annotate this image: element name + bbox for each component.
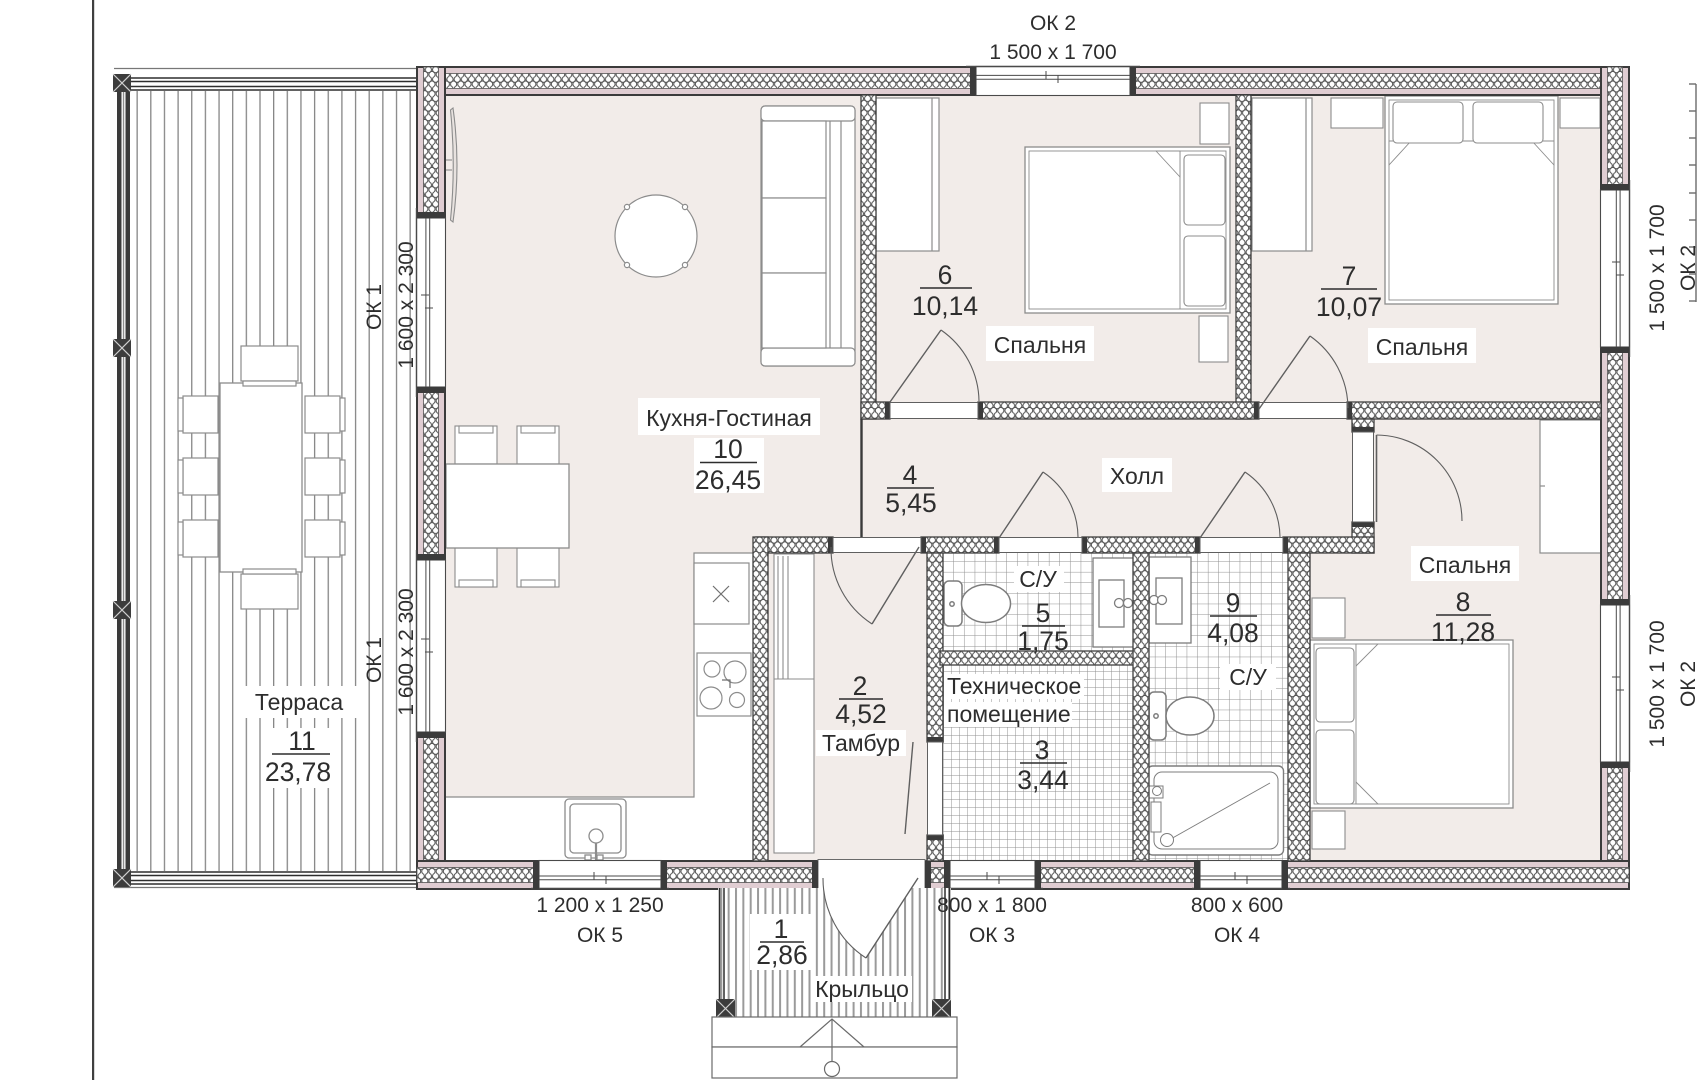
svg-text:ОК 4: ОК 4	[1214, 924, 1260, 947]
svg-text:10,14: 10,14	[912, 291, 978, 321]
svg-text:ОК 5: ОК 5	[577, 924, 623, 947]
svg-text:4,08: 4,08	[1207, 618, 1259, 648]
svg-text:8: 8	[1456, 587, 1471, 617]
svg-text:Спальня: Спальня	[1376, 334, 1468, 360]
svg-text:10,07: 10,07	[1316, 292, 1382, 322]
svg-text:ОК 2: ОК 2	[1677, 661, 1700, 707]
svg-text:11: 11	[288, 726, 316, 756]
svg-text:1,75: 1,75	[1017, 626, 1069, 656]
svg-text:11,28: 11,28	[1431, 617, 1495, 647]
svg-text:Холл: Холл	[1110, 463, 1164, 489]
svg-text:10: 10	[713, 434, 742, 464]
svg-text:Спальня: Спальня	[1419, 552, 1511, 578]
svg-text:ОК 1: ОК 1	[363, 637, 386, 683]
svg-text:Техническое: Техническое	[947, 673, 1081, 699]
svg-text:800 x 600: 800 x 600	[1191, 894, 1283, 917]
svg-text:3,44: 3,44	[1017, 765, 1069, 795]
svg-text:1 500 x 1 700: 1 500 x 1 700	[1646, 204, 1669, 331]
svg-text:1 500 x 1 700: 1 500 x 1 700	[989, 41, 1116, 64]
svg-text:помещение: помещение	[947, 701, 1071, 727]
svg-text:С/У: С/У	[1229, 664, 1267, 690]
svg-text:ОК 1: ОК 1	[363, 284, 386, 330]
svg-text:800 x 1 800: 800 x 1 800	[937, 894, 1047, 917]
svg-text:2,86: 2,86	[756, 940, 808, 970]
svg-text:4,52: 4,52	[835, 699, 887, 729]
svg-text:26,45: 26,45	[695, 465, 761, 495]
svg-text:23,78: 23,78	[265, 757, 331, 787]
svg-text:Тамбур: Тамбур	[822, 730, 900, 756]
svg-text:1 600 x 2 300: 1 600 x 2 300	[395, 588, 418, 715]
svg-text:1 200 x 1 250: 1 200 x 1 250	[536, 894, 663, 917]
svg-text:1 500 x 1 700: 1 500 x 1 700	[1646, 620, 1669, 747]
svg-text:2: 2	[853, 671, 868, 701]
svg-text:1 600 x 2 300: 1 600 x 2 300	[395, 241, 418, 368]
svg-text:ОК 2: ОК 2	[1677, 245, 1700, 291]
svg-text:4: 4	[903, 460, 918, 490]
svg-text:6: 6	[938, 260, 953, 290]
svg-text:Кухня-Гостиная: Кухня-Гостиная	[646, 405, 812, 431]
svg-text:С/У: С/У	[1019, 566, 1057, 592]
svg-text:5: 5	[1036, 598, 1051, 628]
svg-text:9: 9	[1226, 588, 1241, 618]
svg-text:7: 7	[1342, 261, 1357, 291]
svg-text:Крыльцо: Крыльцо	[815, 976, 909, 1002]
svg-text:Терраса: Терраса	[255, 689, 343, 715]
svg-text:Спальня: Спальня	[994, 332, 1086, 358]
svg-text:5,45: 5,45	[885, 488, 937, 518]
svg-text:ОК 3: ОК 3	[969, 924, 1015, 947]
svg-text:ОК 2: ОК 2	[1030, 12, 1076, 35]
svg-text:3: 3	[1035, 735, 1050, 765]
